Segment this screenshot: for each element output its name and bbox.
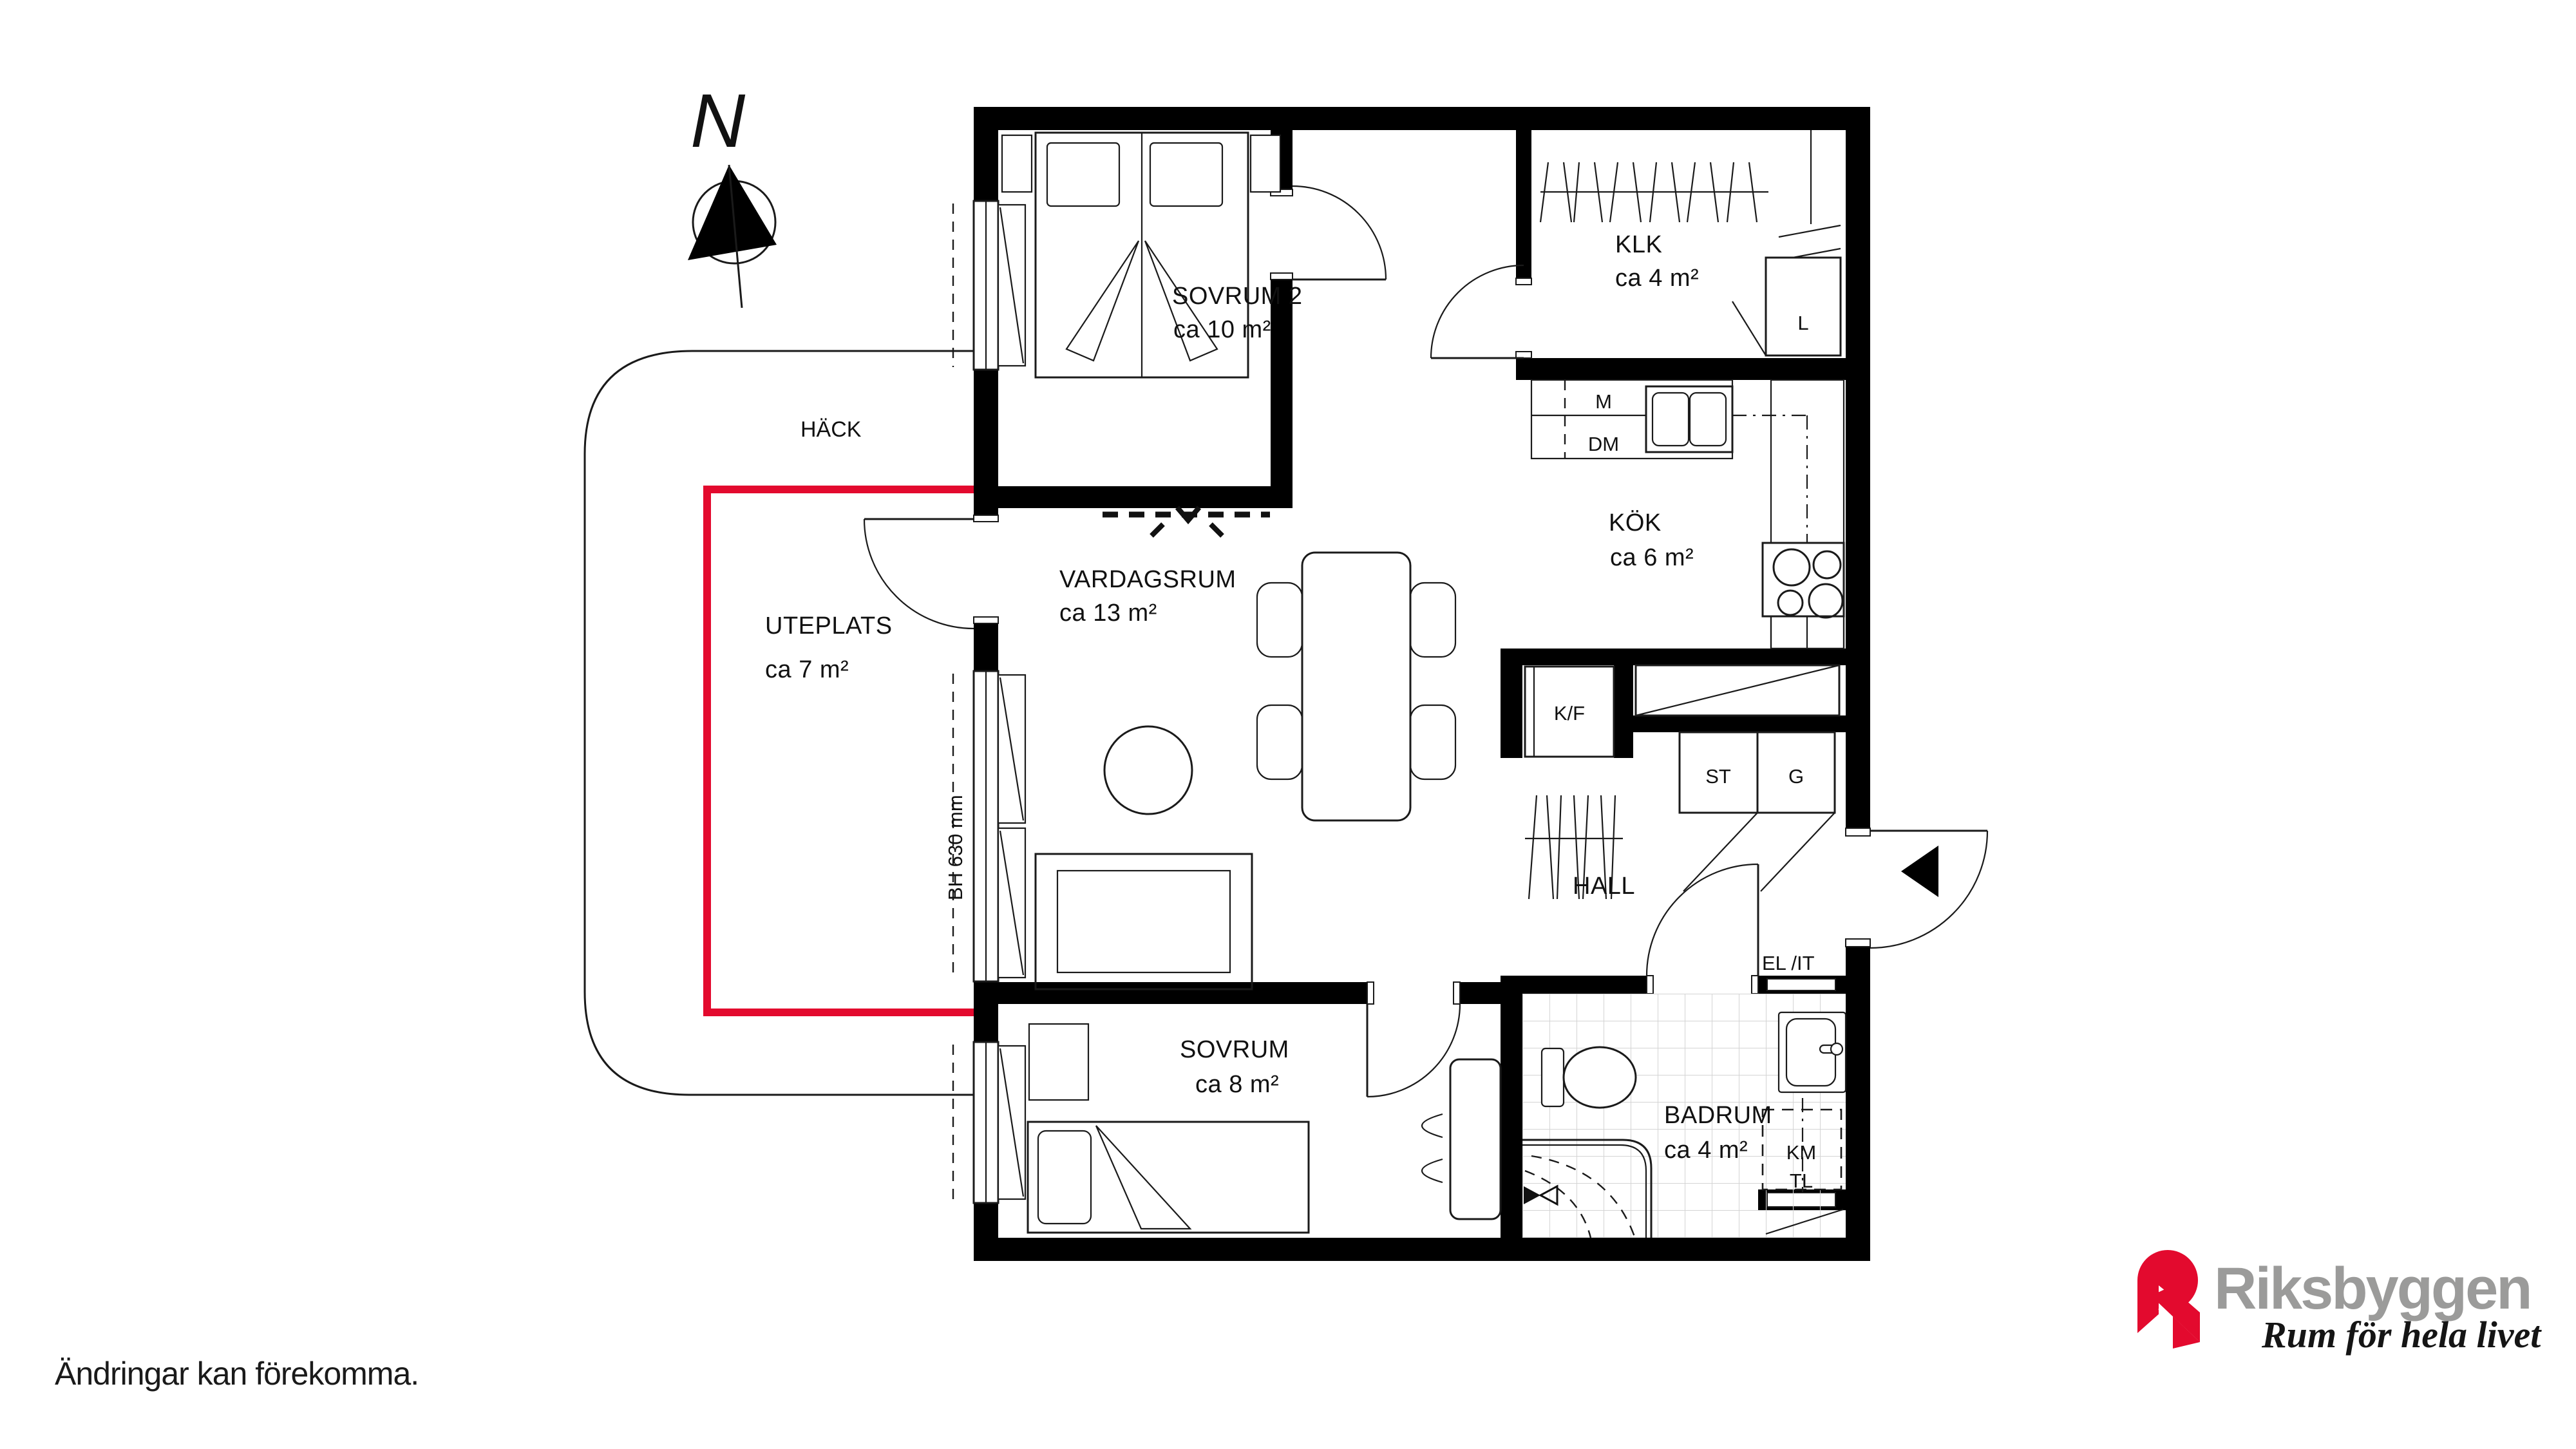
hall-label: HALL [1573, 873, 1635, 900]
vardagsrum-label: VARDAGSRUM [1059, 566, 1236, 593]
klk-fittings [1540, 130, 1841, 355]
entrance-door [1846, 828, 1987, 948]
micro-label: M [1595, 390, 1612, 413]
fridge-freezer-label: K/F [1554, 702, 1585, 724]
toilet-icon [1542, 1047, 1636, 1108]
window-sovrum2 [953, 201, 1025, 370]
badrum-door [1647, 864, 1758, 994]
hedge-label: HÄCK [800, 417, 862, 442]
sovrum2-door [1271, 186, 1386, 279]
washer-label: KM [1786, 1141, 1817, 1164]
patio-area: ca 7 m² [765, 656, 849, 683]
linen-closet-label: L [1797, 312, 1808, 334]
sovrum-label: SOVRUM [1180, 1036, 1289, 1063]
kok-area: ca 6 m² [1610, 544, 1694, 571]
hedge-outline [585, 351, 974, 1095]
uteplats-red-boundary [707, 489, 976, 1012]
cleaning-closet-label: ST [1705, 765, 1731, 788]
sovrum2-label: SOVRUM 2 [1172, 283, 1302, 310]
patio-label: UTEPLATS [765, 612, 893, 639]
klk-door [1431, 265, 1531, 358]
badrum-label: BADRUM [1664, 1102, 1772, 1129]
window-height-note: BH 630 mm [944, 795, 967, 900]
riksbyggen-ribbon-icon [2137, 1250, 2200, 1349]
window-sovrum [953, 1042, 1025, 1203]
sovrum-area: ca 8 m² [1195, 1071, 1279, 1098]
high-window-symbol [1103, 507, 1270, 536]
floorplan-canvas: N SOVRUM 2 ca 10 m² KLK ca 4 m² KÖK ca 6… [0, 0, 2576, 1449]
riksbyggen-logo: Riksbyggen Rum för hela livet [2137, 1250, 2542, 1356]
entrance-arrow-icon [1901, 846, 1938, 897]
washbasin-icon [1779, 1012, 1846, 1092]
dishwasher-label: DM [1588, 433, 1619, 455]
kok-label: KÖK [1609, 509, 1662, 536]
brand-tagline: Rum för hela livet [2261, 1314, 2542, 1356]
klk-area: ca 4 m² [1615, 265, 1699, 292]
sovrum-door [1367, 982, 1460, 1097]
badrum-area: ca 4 m² [1664, 1137, 1748, 1164]
electrical-label: EL /IT [1762, 952, 1815, 974]
north-compass: N [688, 79, 777, 308]
floorplan-page: N SOVRUM 2 ca 10 m² KLK ca 4 m² KÖK ca 6… [0, 0, 2576, 1449]
disclaimer-text: Ändringar kan förekomma. [55, 1356, 419, 1392]
patio-door [864, 515, 998, 629]
sovrum2-area: ca 10 m² [1173, 316, 1271, 343]
north-needle-icon [688, 165, 777, 260]
vardagsrum-area: ca 13 m² [1059, 600, 1157, 627]
dryer-label: TL [1790, 1170, 1813, 1192]
north-label: N [690, 79, 746, 164]
wardrobe-label: G [1788, 765, 1804, 788]
kitchen-fittings [1531, 380, 1844, 649]
klk-label: KLK [1615, 231, 1662, 258]
brand-name: Riksbyggen [2214, 1256, 2530, 1321]
